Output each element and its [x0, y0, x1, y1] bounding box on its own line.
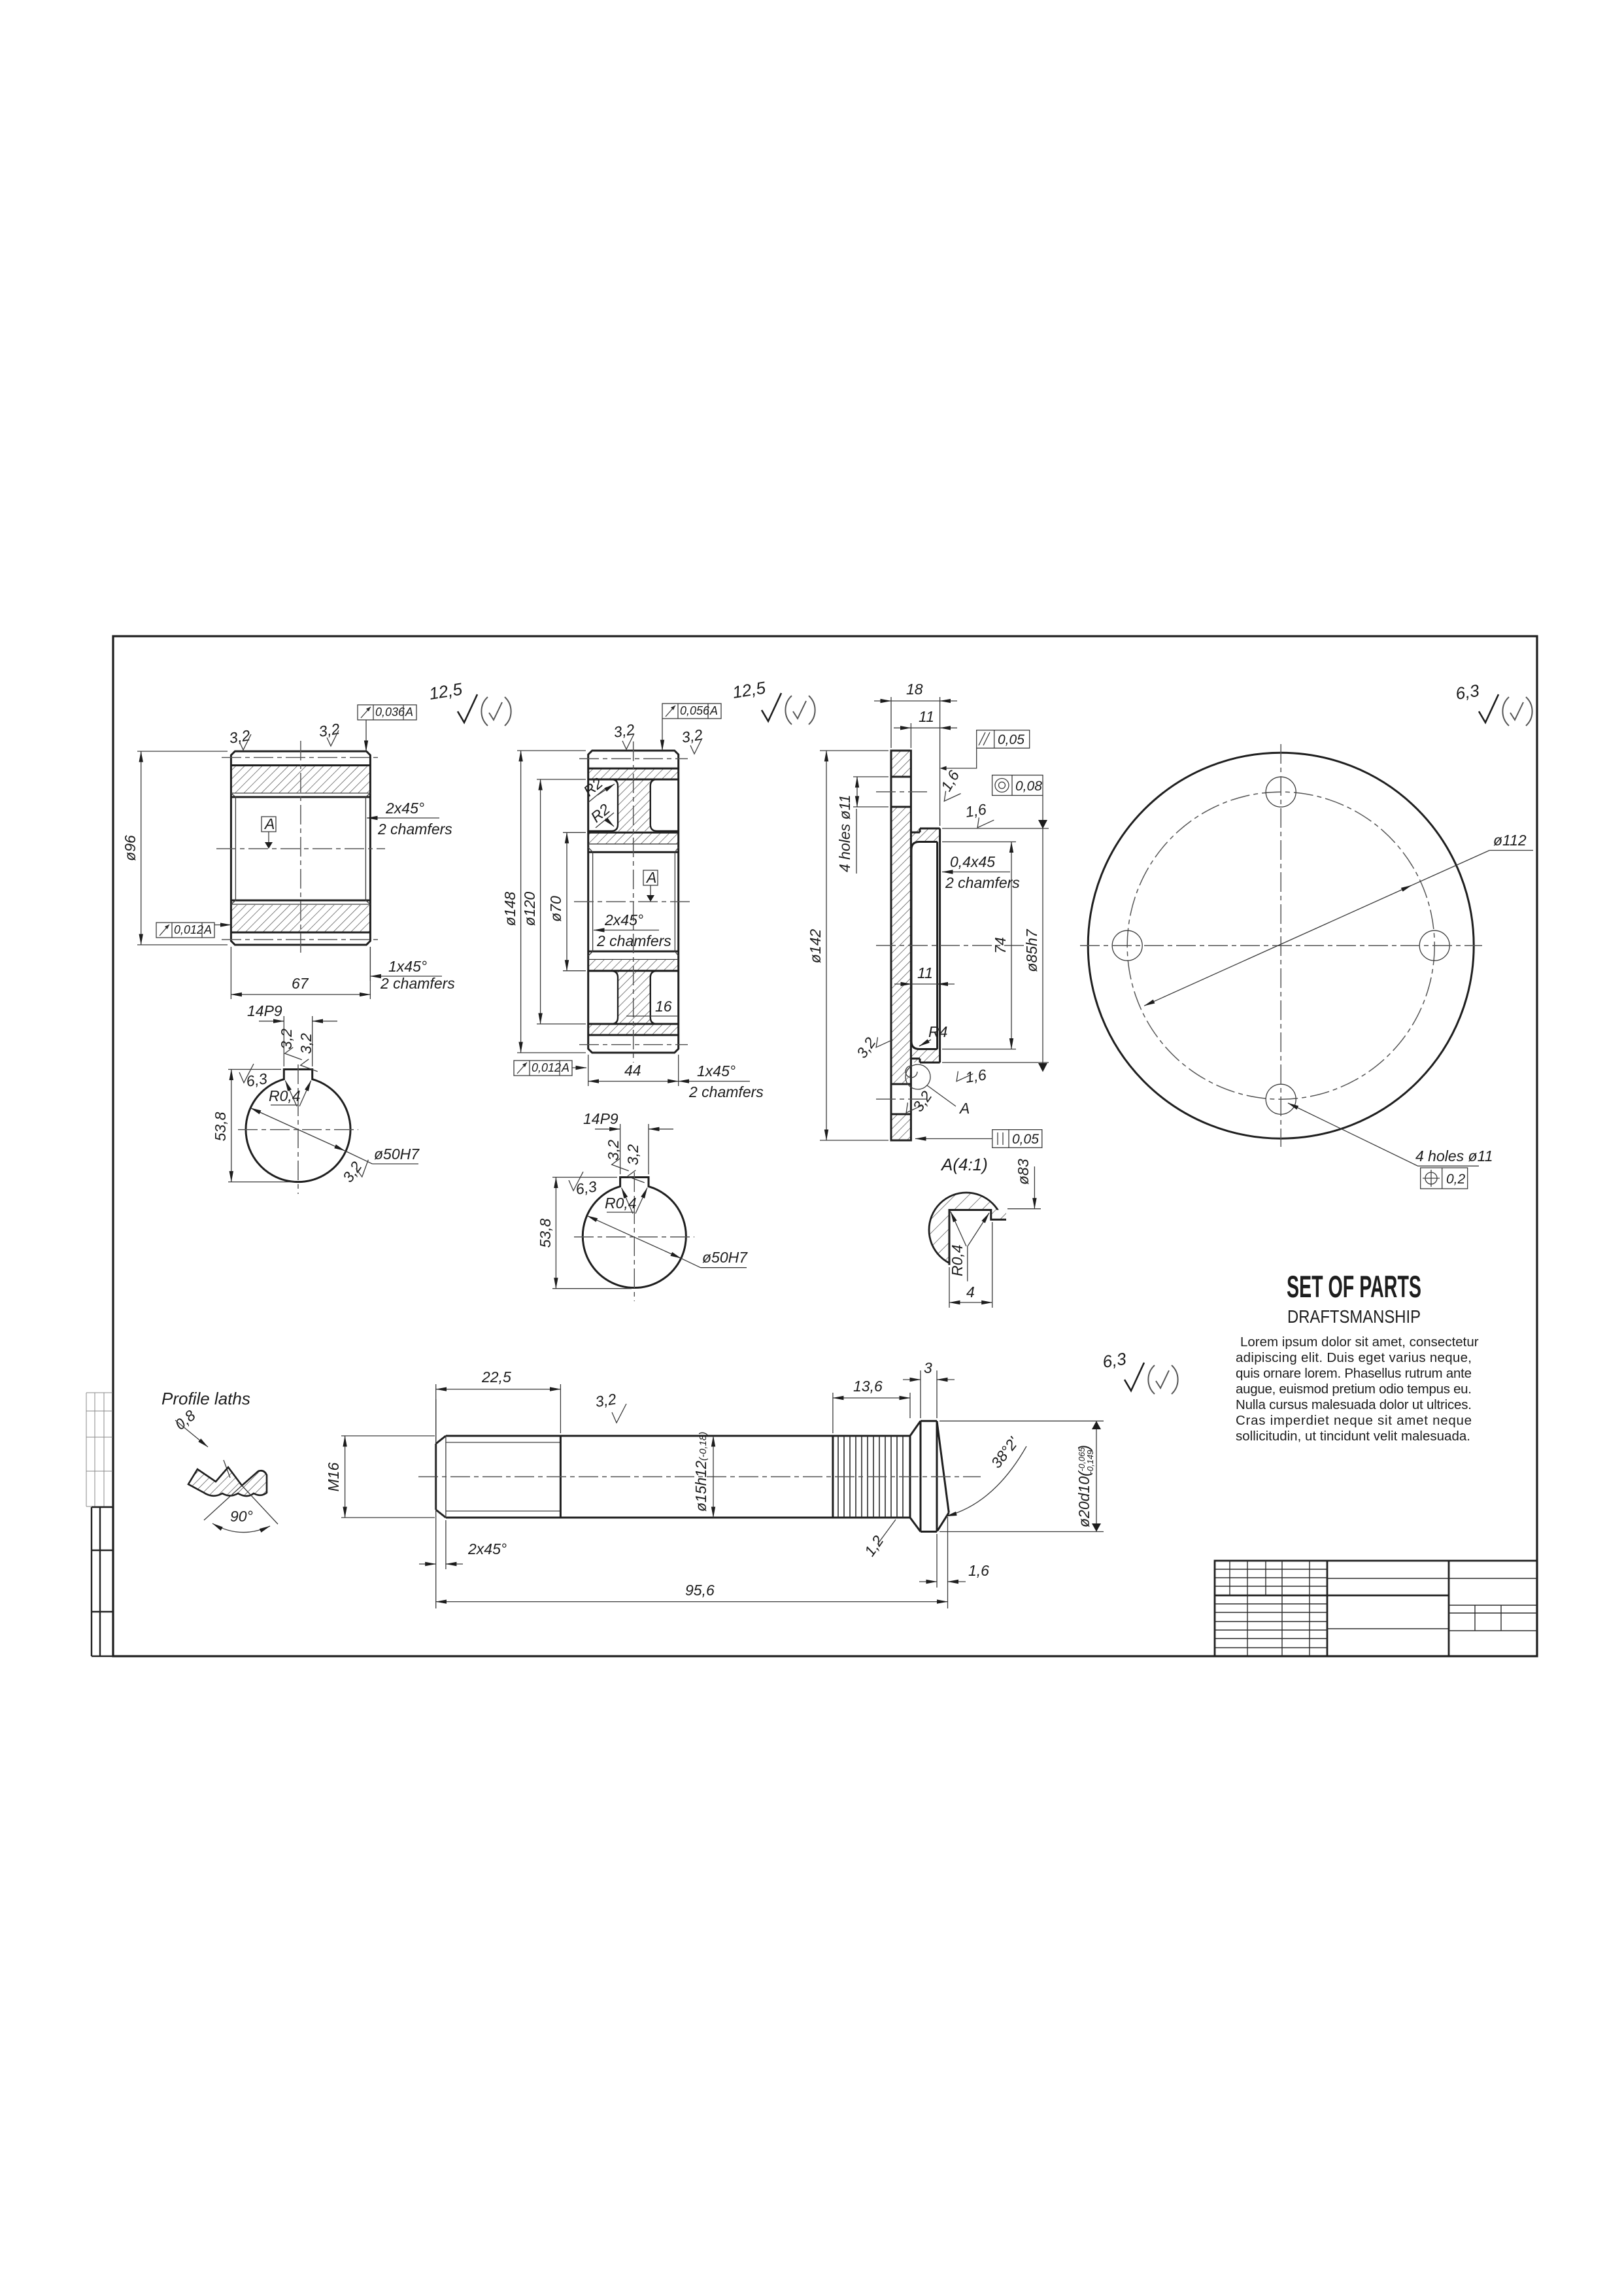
svg-text:adipiscing elit. Duis eget var: adipiscing elit. Duis eget varius neque,: [1236, 1350, 1472, 1365]
svg-text:ø70: ø70: [547, 896, 564, 922]
svg-text:4: 4: [966, 1283, 975, 1300]
svg-text:0,4x45: 0,4x45: [950, 853, 995, 870]
svg-text:0,2: 0,2: [1446, 1172, 1466, 1187]
svg-text:ø120: ø120: [521, 892, 538, 926]
svg-text:53,8: 53,8: [537, 1218, 554, 1248]
svg-text:ø20d10(-0,065-0,149): ø20d10(-0,065-0,149): [1075, 1445, 1095, 1527]
svg-text:3,2: 3,2: [605, 1140, 622, 1161]
svg-text:95,6: 95,6: [685, 1582, 715, 1599]
svg-text:3,2: 3,2: [228, 726, 252, 747]
svg-text:4 holes ø11: 4 holes ø11: [836, 795, 853, 872]
svg-text:2x45°: 2x45°: [385, 800, 424, 817]
svg-text:R0,4: R0,4: [605, 1195, 637, 1212]
svg-text:90°: 90°: [230, 1508, 253, 1525]
svg-text:6,3: 6,3: [245, 1070, 269, 1090]
svg-text:2x45°: 2x45°: [604, 911, 643, 928]
svg-text:0,08: 0,08: [1015, 779, 1042, 794]
svg-text:ø85h7: ø85h7: [1023, 928, 1040, 972]
svg-text:0,05: 0,05: [1012, 1132, 1039, 1147]
svg-text:11: 11: [917, 964, 933, 981]
svg-text:SET OF PARTS: SET OF PARTS: [1287, 1269, 1421, 1304]
svg-text:53,8: 53,8: [212, 1112, 229, 1141]
svg-text:11: 11: [919, 708, 934, 725]
svg-text:6,3: 6,3: [575, 1178, 598, 1198]
svg-text:DRAFTSMANSHIP: DRAFTSMANSHIP: [1287, 1306, 1421, 1327]
svg-text:ø142: ø142: [807, 929, 824, 964]
svg-text:1,6: 1,6: [964, 800, 988, 821]
svg-text:Lorem ipsum dolor sit amet, co: Lorem ipsum dolor sit amet, consectetur: [1240, 1334, 1479, 1350]
svg-text:R0,4: R0,4: [269, 1087, 301, 1104]
svg-text:A: A: [709, 704, 718, 717]
svg-text:ø96: ø96: [122, 835, 139, 861]
svg-text:Nulla cursus malesuada dolor u: Nulla cursus malesuada dolor ut ultrices…: [1236, 1397, 1472, 1412]
svg-text:A: A: [645, 869, 656, 886]
svg-text:0,036: 0,036: [375, 705, 405, 719]
svg-text:A: A: [405, 705, 413, 719]
svg-text:Profile laths: Profile laths: [161, 1389, 250, 1408]
svg-text:3,2: 3,2: [681, 726, 704, 746]
svg-text:R0,4: R0,4: [949, 1244, 966, 1276]
svg-text:2 chamfers: 2 chamfers: [380, 975, 455, 992]
svg-text:ø50H7: ø50H7: [702, 1249, 748, 1266]
svg-text:2x45°: 2x45°: [467, 1540, 507, 1557]
svg-text:0,05: 0,05: [998, 732, 1024, 747]
svg-text:18: 18: [906, 681, 923, 698]
svg-text:14P9: 14P9: [247, 1002, 282, 1019]
svg-text:quis ornare lorem. Phasellus r: quis ornare lorem. Phasellus rutrum ante: [1236, 1366, 1472, 1381]
svg-text:2 chamfers: 2 chamfers: [377, 821, 452, 838]
svg-text:67: 67: [292, 975, 309, 992]
svg-text:6,3: 6,3: [1101, 1349, 1128, 1372]
svg-text:augue, euismod pretium odio te: augue, euismod pretium odio tempus eu.: [1236, 1382, 1472, 1397]
svg-text:14P9: 14P9: [583, 1110, 618, 1127]
svg-text:2 chamfers: 2 chamfers: [945, 874, 1020, 891]
svg-text:2 chamfers: 2 chamfers: [596, 932, 671, 949]
svg-text:Cras imperdiet neque sit amet: Cras imperdiet neque sit amet neque: [1236, 1413, 1472, 1428]
svg-text:16: 16: [655, 998, 672, 1015]
svg-text:22,5: 22,5: [481, 1368, 511, 1385]
svg-text:sollicitudin, ut tincidunt vel: sollicitudin, ut tincidunt velit malesua…: [1236, 1429, 1470, 1444]
svg-text:1x45°: 1x45°: [697, 1062, 736, 1079]
svg-text:ø112: ø112: [1493, 832, 1527, 849]
svg-text:0,012: 0,012: [174, 923, 203, 936]
svg-text:A: A: [203, 923, 212, 936]
svg-text:A: A: [263, 815, 275, 832]
svg-text:0,012: 0,012: [532, 1061, 561, 1074]
svg-text:3,2: 3,2: [318, 720, 341, 740]
svg-text:4 holes ø11: 4 holes ø11: [1415, 1147, 1493, 1164]
svg-text:ø50H7: ø50H7: [374, 1146, 420, 1163]
svg-text:A: A: [958, 1100, 970, 1117]
svg-text:A: A: [561, 1061, 569, 1074]
svg-text:13,6: 13,6: [853, 1378, 883, 1395]
svg-text:0,056: 0,056: [680, 704, 710, 717]
svg-text:M16: M16: [325, 1462, 342, 1491]
svg-text:2 chamfers: 2 chamfers: [688, 1083, 764, 1100]
svg-text:ø83: ø83: [1015, 1159, 1032, 1185]
svg-text:44: 44: [624, 1062, 641, 1079]
svg-text:A(4:1): A(4:1): [940, 1155, 988, 1174]
svg-text:1,6: 1,6: [968, 1562, 989, 1579]
svg-text:3,2: 3,2: [278, 1028, 295, 1049]
svg-text:3,2: 3,2: [297, 1033, 314, 1054]
svg-text:ø148: ø148: [501, 892, 518, 926]
svg-text:3,2: 3,2: [624, 1144, 641, 1165]
svg-text:3: 3: [924, 1359, 932, 1376]
svg-text:74: 74: [992, 937, 1009, 954]
svg-text:1x45°: 1x45°: [388, 958, 427, 975]
svg-text:R4: R4: [928, 1023, 947, 1040]
svg-text:6,3: 6,3: [1454, 681, 1481, 704]
svg-text:3,2: 3,2: [594, 1390, 618, 1410]
